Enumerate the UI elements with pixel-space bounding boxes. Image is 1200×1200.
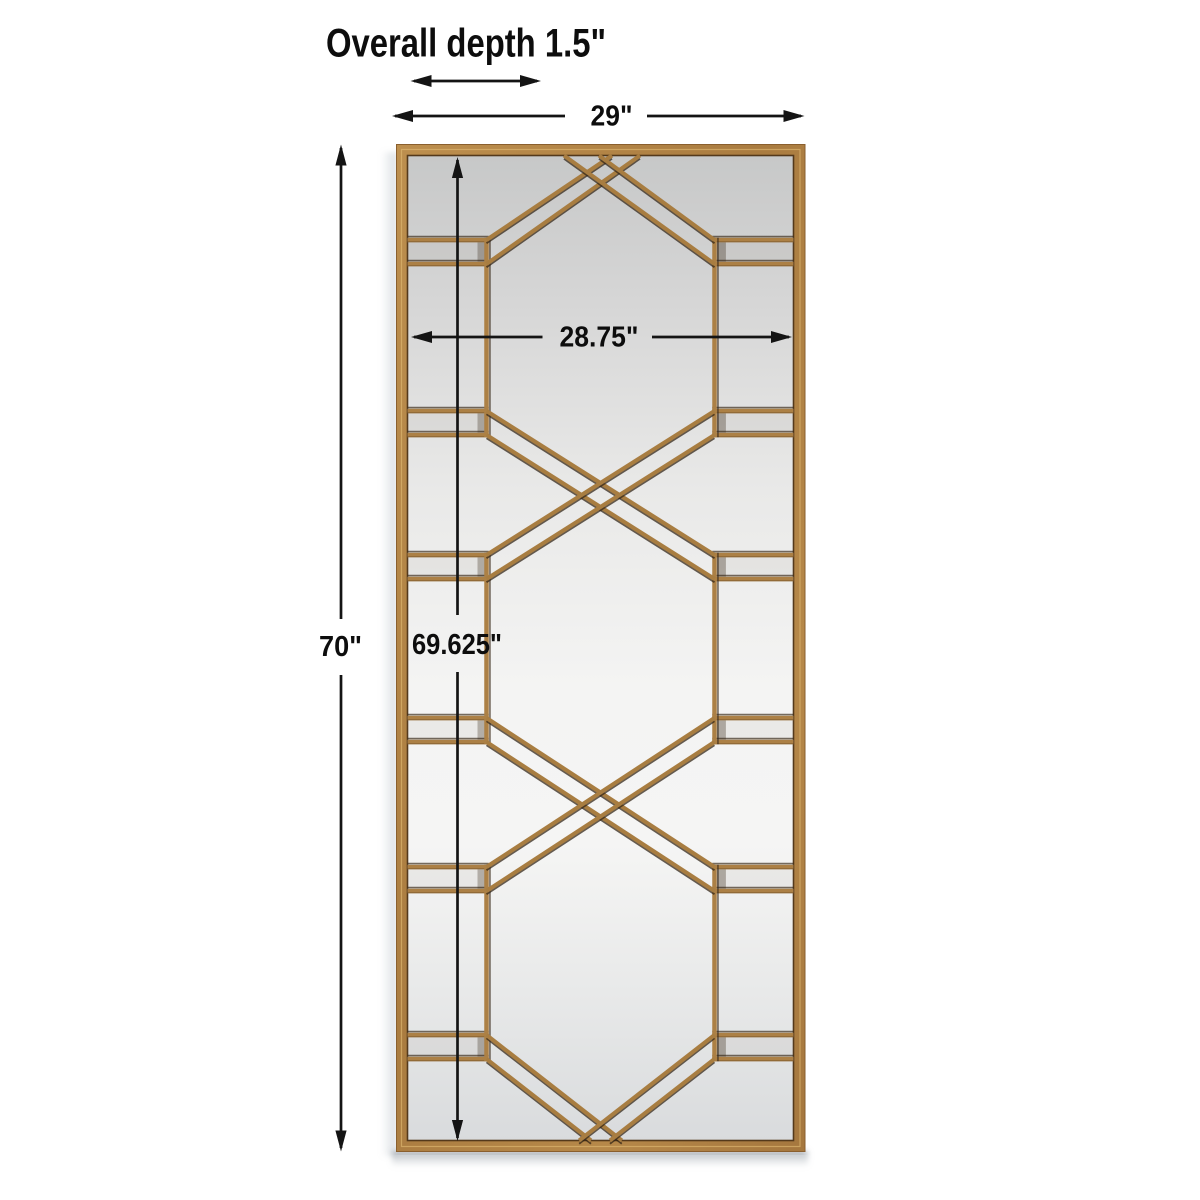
svg-text:Overall depth 1.5": Overall depth 1.5" <box>326 22 606 66</box>
svg-text:69.625": 69.625" <box>412 629 502 661</box>
svg-text:29": 29" <box>591 101 633 133</box>
svg-text:70": 70" <box>319 631 362 663</box>
svg-text:28.75": 28.75" <box>560 322 639 354</box>
